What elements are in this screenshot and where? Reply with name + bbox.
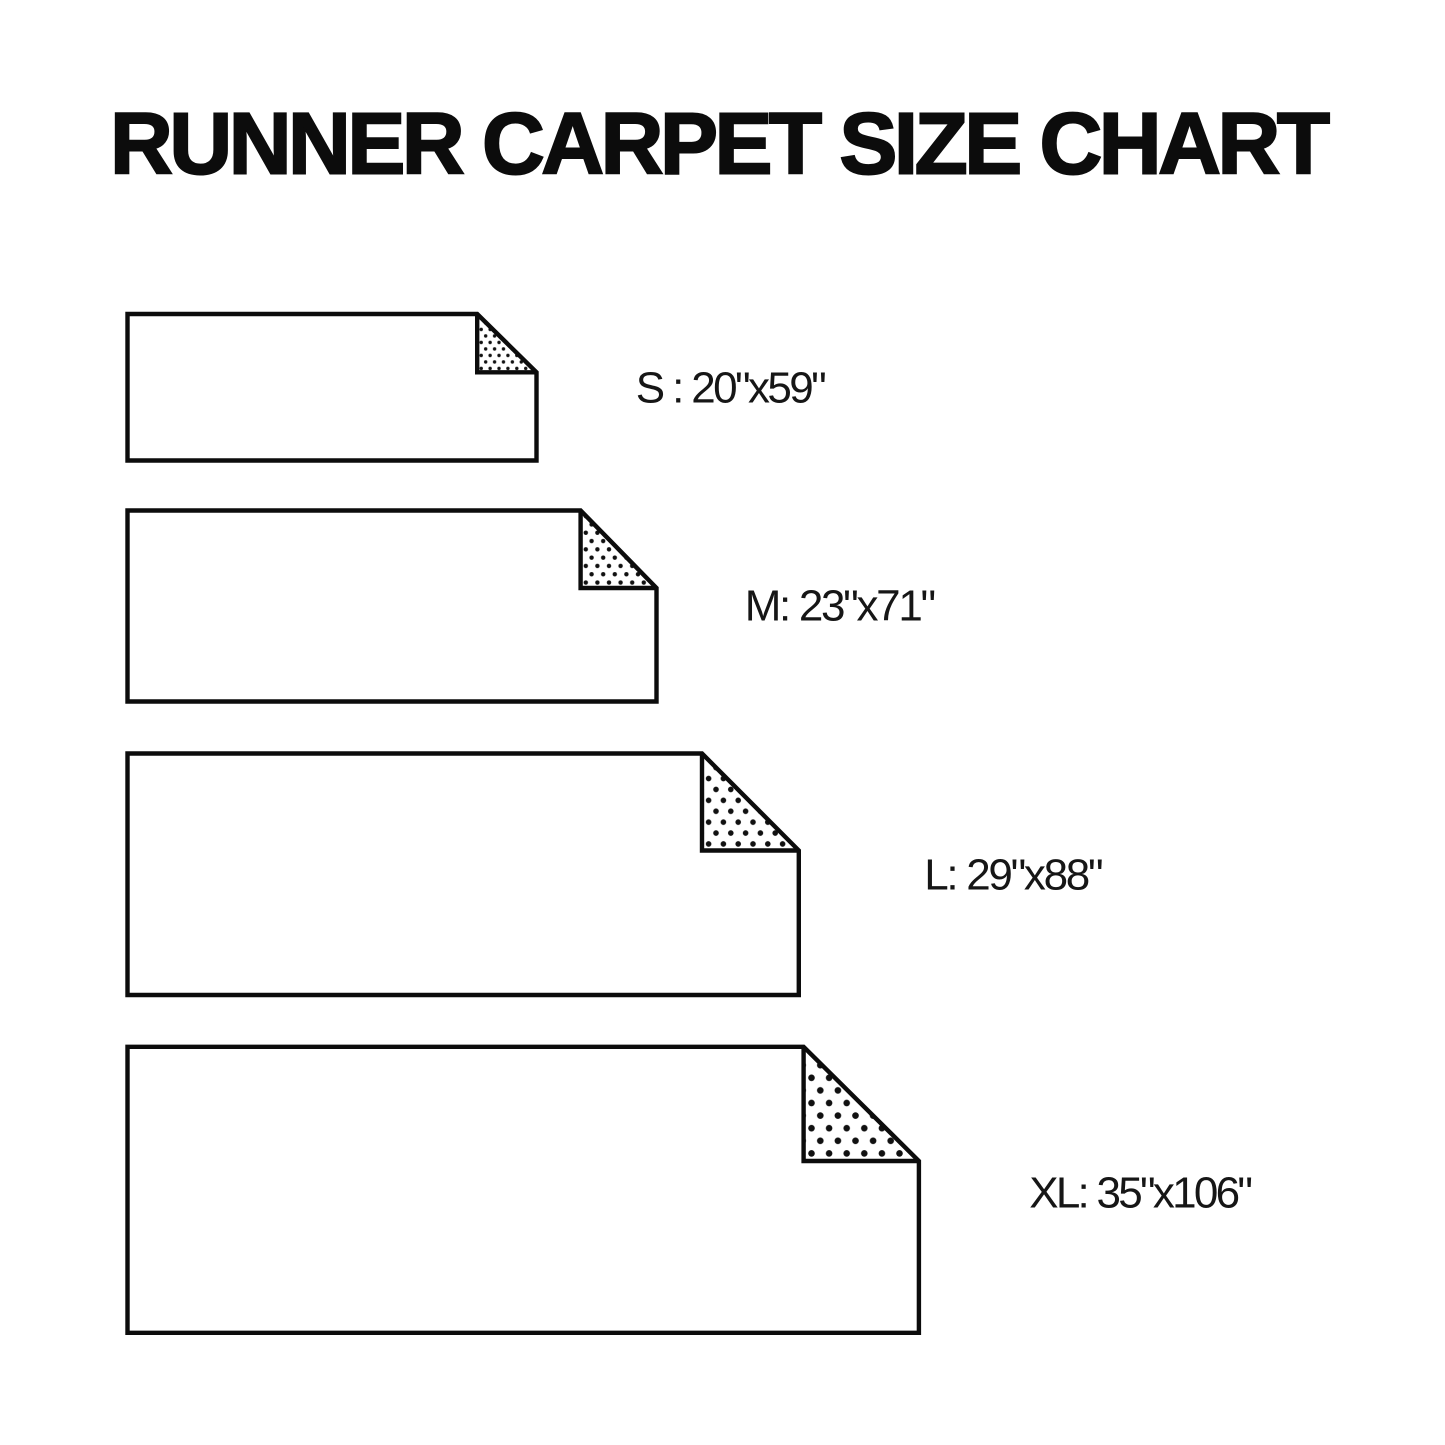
svg-text:M: 23"x71": M: 23"x71"	[745, 582, 936, 631]
svg-text:S : 20"x59": S : 20"x59"	[636, 364, 827, 413]
svg-text:XL: 35"x106": XL: 35"x106"	[1029, 1169, 1253, 1218]
svg-text:L: 29"x88": L: 29"x88"	[924, 851, 1103, 900]
svg-text:RUNNER CARPET SIZE CHART: RUNNER CARPET SIZE CHART	[110, 96, 1330, 193]
